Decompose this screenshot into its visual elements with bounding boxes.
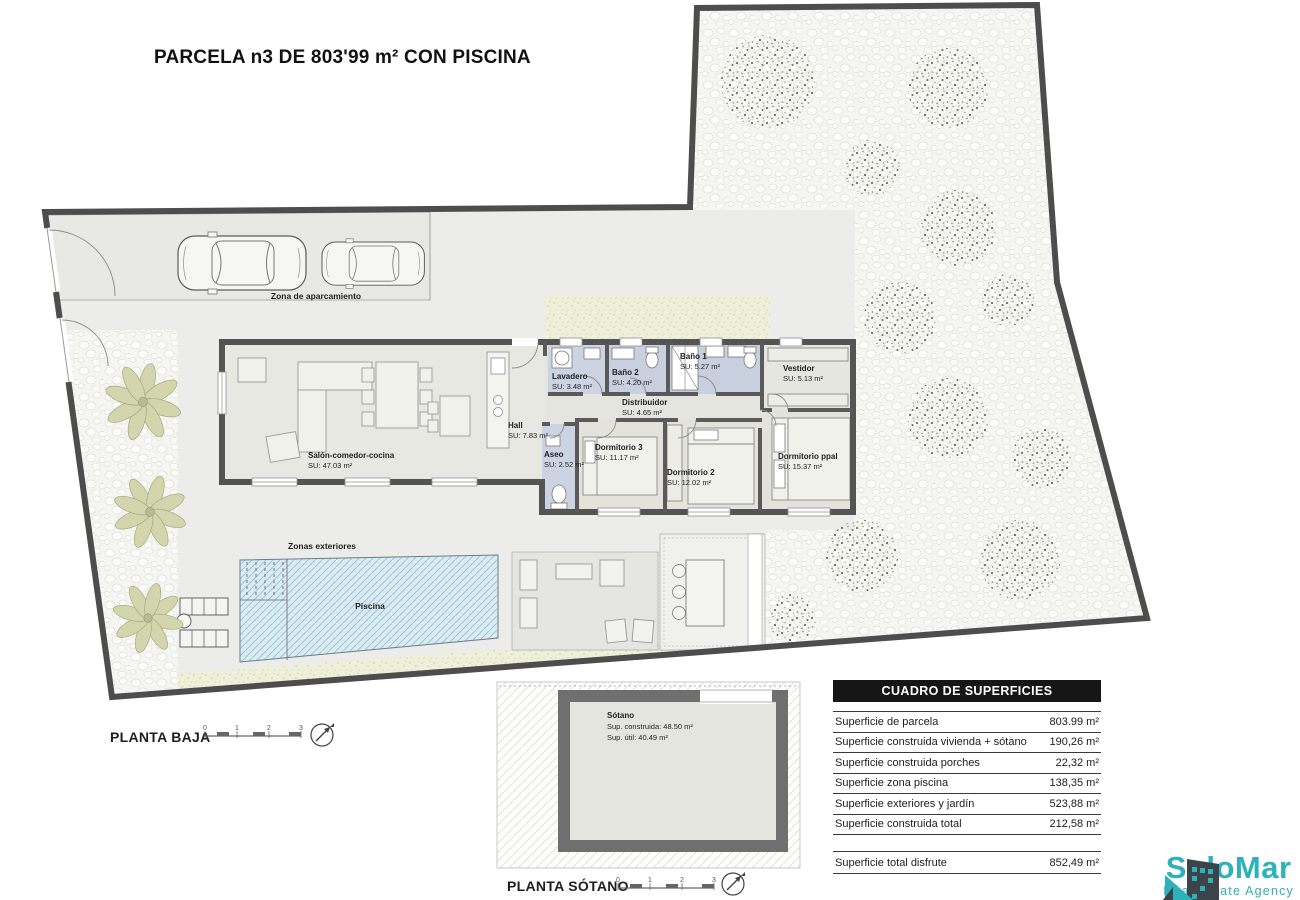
row-label: Superficie exteriores y jardín xyxy=(835,798,974,810)
room-aseo-name: Aseo xyxy=(544,450,564,459)
room-vestidor-name: Vestidor xyxy=(783,364,815,373)
row-value: 190,26 m² xyxy=(1049,736,1099,748)
north-arrow-ground xyxy=(311,723,334,746)
room-ppal-name: Dormitorio ppal xyxy=(778,452,838,461)
table-row: Superficie construida porches 22,32 m² xyxy=(833,753,1101,774)
basement-floor-label: PLANTA SÓTANO xyxy=(507,877,629,894)
table-row: Superficie zona piscina 138,35 m² xyxy=(833,774,1101,795)
basement-plan: Sótano Sup. construida: 48.50 m² Sup. út… xyxy=(497,682,800,868)
scale-tick: 2 xyxy=(680,877,684,884)
room-dorm2-name: Dormitorio 2 xyxy=(667,468,715,477)
areas-table: CUADRO DE SUPERFICIES Superficie de parc… xyxy=(833,680,1101,874)
room-distribuidor-su: SU: 4.65 m² xyxy=(622,408,663,417)
exterior-zones-label: Zonas exteriores xyxy=(288,541,356,551)
scale-tick: 0 xyxy=(616,877,620,884)
room-distribuidor-name: Distribuidor xyxy=(622,398,667,407)
row-value: 22,32 m² xyxy=(1056,757,1099,769)
scale-tick: 0 xyxy=(203,725,207,732)
basement-built-area: Sup. construida: 48.50 m² xyxy=(607,722,693,731)
room-salon-su: SU: 47.03 m² xyxy=(308,461,353,470)
room-bano2-su: SU: 4.20 m² xyxy=(612,378,653,387)
floorplan-page: Zona de aparcamiento Zonas exteriores Pi… xyxy=(0,0,1300,900)
room-dorm3-name: Dormitorio 3 xyxy=(595,443,643,452)
row-label: Superficie construida porches xyxy=(835,757,980,769)
basement-name: Sótano xyxy=(607,711,634,720)
room-bano1-name: Baño 1 xyxy=(680,352,707,361)
areas-table-rows: Superficie de parcela 803.99 m² Superfic… xyxy=(833,711,1101,835)
row-value: 138,35 m² xyxy=(1049,777,1099,789)
ground-floor-label: PLANTA BAJA xyxy=(110,729,211,745)
basement-useful-area: Sup. útil: 40.49 m² xyxy=(607,733,668,742)
room-lavadero-name: Lavadero xyxy=(552,372,588,381)
row-value: 212,58 m² xyxy=(1049,818,1099,830)
areas-table-title: CUADRO DE SUPERFICIES xyxy=(833,680,1101,702)
row-label: Superficie zona piscina xyxy=(835,777,948,789)
row-value: 803.99 m² xyxy=(1049,716,1099,728)
scale-tick: 2 xyxy=(267,725,271,732)
table-total-row: Superficie total disfrute 852,49 m² xyxy=(833,851,1101,874)
room-ppal-su: SU: 15.37 m² xyxy=(778,462,823,471)
scale-tick: 1 xyxy=(648,877,652,884)
row-label: Superficie de parcela xyxy=(835,716,938,728)
room-dorm2-su: SU: 12.02 m² xyxy=(667,478,712,487)
scalebar-ground: 0 1 2 3 xyxy=(203,725,303,738)
room-lavadero-su: SU: 3.48 m² xyxy=(552,382,593,391)
scale-tick: 3 xyxy=(712,877,716,884)
page-title: PARCELA n3 DE 803'99 m² CON PISCINA xyxy=(154,47,531,69)
room-hall-su: SU: 7.83 m² xyxy=(508,431,549,440)
room-dorm3-su: SU: 11.17 m² xyxy=(595,453,639,462)
room-bano1-su: SU: 5.27 m² xyxy=(680,362,721,371)
solomar-logo-icon xyxy=(1159,853,1223,900)
solomar-logo: SoloMar Real Estate Agency xyxy=(1159,853,1294,898)
room-bano2-name: Baño 2 xyxy=(612,368,639,377)
row-value: 523,88 m² xyxy=(1049,798,1099,810)
row-label: Superficie construida total xyxy=(835,818,962,830)
scale-tick: 3 xyxy=(299,725,303,732)
room-hall-name: Hall xyxy=(508,421,523,430)
site-plan-drawing: Zona de aparcamiento Zonas exteriores Pi… xyxy=(0,0,1300,900)
scalebar-basement: 0 1 2 3 xyxy=(616,877,716,890)
room-salon-name: Salón-comedor-cocina xyxy=(308,451,395,460)
car-2 xyxy=(322,239,424,289)
dining-terrace xyxy=(660,534,765,650)
room-vestidor-su: SU: 5.13 m² xyxy=(783,374,824,383)
scale-tick: 1 xyxy=(235,725,239,732)
row-label: Superficie construida vivienda + sótano xyxy=(835,736,1027,748)
table-row: Superficie de parcela 803.99 m² xyxy=(833,712,1101,733)
car-1 xyxy=(178,232,306,294)
parking-label: Zona de aparcamiento xyxy=(271,291,361,301)
total-label: Superficie total disfrute xyxy=(835,857,947,869)
total-value: 852,49 m² xyxy=(1049,857,1099,869)
table-row: Superficie construida vivienda + sótano … xyxy=(833,733,1101,754)
north-arrow-basement xyxy=(722,872,745,895)
lawn-strip-top xyxy=(545,295,770,341)
table-row: Superficie construida total 212,58 m² xyxy=(833,815,1101,836)
pool-label: Piscina xyxy=(355,601,385,611)
table-row: Superficie exteriores y jardín 523,88 m² xyxy=(833,794,1101,815)
lounge-terrace xyxy=(512,552,658,650)
room-aseo-su: SU: 2.52 m² xyxy=(544,460,585,469)
